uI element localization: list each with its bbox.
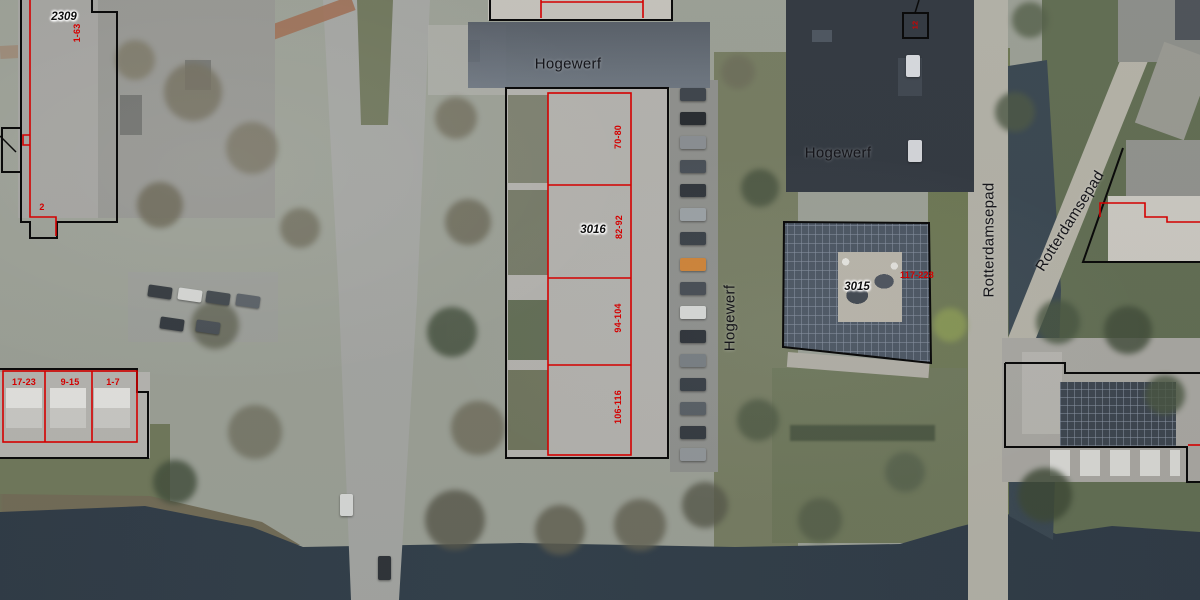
- street-label-rotterdamsepad-west: Rotterdamsepad: [981, 182, 998, 297]
- parcel-lines-top-center[interactable]: [541, 0, 643, 18]
- parcel-number-3015[interactable]: 3015: [844, 281, 870, 293]
- cadastral-overlay: [0, 0, 1200, 600]
- address-range-3016-4: 106-116: [613, 390, 623, 424]
- street-label-hogewerf-top: Hogewerf: [535, 56, 602, 73]
- parcel-line-2309-west[interactable]: [30, 0, 56, 236]
- parcel-number-2309[interactable]: 2309: [51, 11, 77, 23]
- parcel-number-3016[interactable]: 3016: [580, 224, 606, 236]
- address-range-sw-3: 1-7: [106, 377, 120, 387]
- address-range-3016-2: 82-92: [614, 215, 624, 239]
- address-range-marker-ne: 12: [911, 21, 920, 30]
- street-label-hogewerf-east: Hogewerf: [805, 145, 872, 162]
- outline-southeast-building-top[interactable]: [1005, 363, 1200, 373]
- outline-building-2309-annex[interactable]: [2, 128, 21, 172]
- leader-line-marker: [915, 0, 919, 13]
- address-range-3016-3: 94-104: [613, 303, 623, 332]
- address-range-2309: 1-63: [72, 24, 82, 43]
- outline-building-2309[interactable]: [21, 0, 117, 238]
- address-range-sw-2: 9-15: [61, 377, 80, 387]
- parcel-line-east-stepped[interactable]: [1100, 203, 1200, 222]
- outline-southeast-building-body[interactable]: [1005, 363, 1200, 482]
- outline-building-3016[interactable]: [506, 88, 668, 458]
- outline-top-center-row[interactable]: [490, 0, 672, 20]
- parcel-dividers-3016[interactable]: [548, 185, 631, 365]
- address-range-sw-1: 17-23: [12, 377, 36, 387]
- parcel-line-2309-notch[interactable]: [23, 135, 30, 145]
- address-range-3015: 117-228: [900, 270, 934, 280]
- street-label-hogewerf-vertical: Hogewerf: [722, 285, 739, 352]
- address-annex-2309: 2: [39, 202, 44, 212]
- address-range-3016-1: 70-80: [613, 125, 623, 149]
- aerial-map-view: Hogewerf Hogewerf Hogewerf Rotterdamsepa…: [0, 0, 1200, 600]
